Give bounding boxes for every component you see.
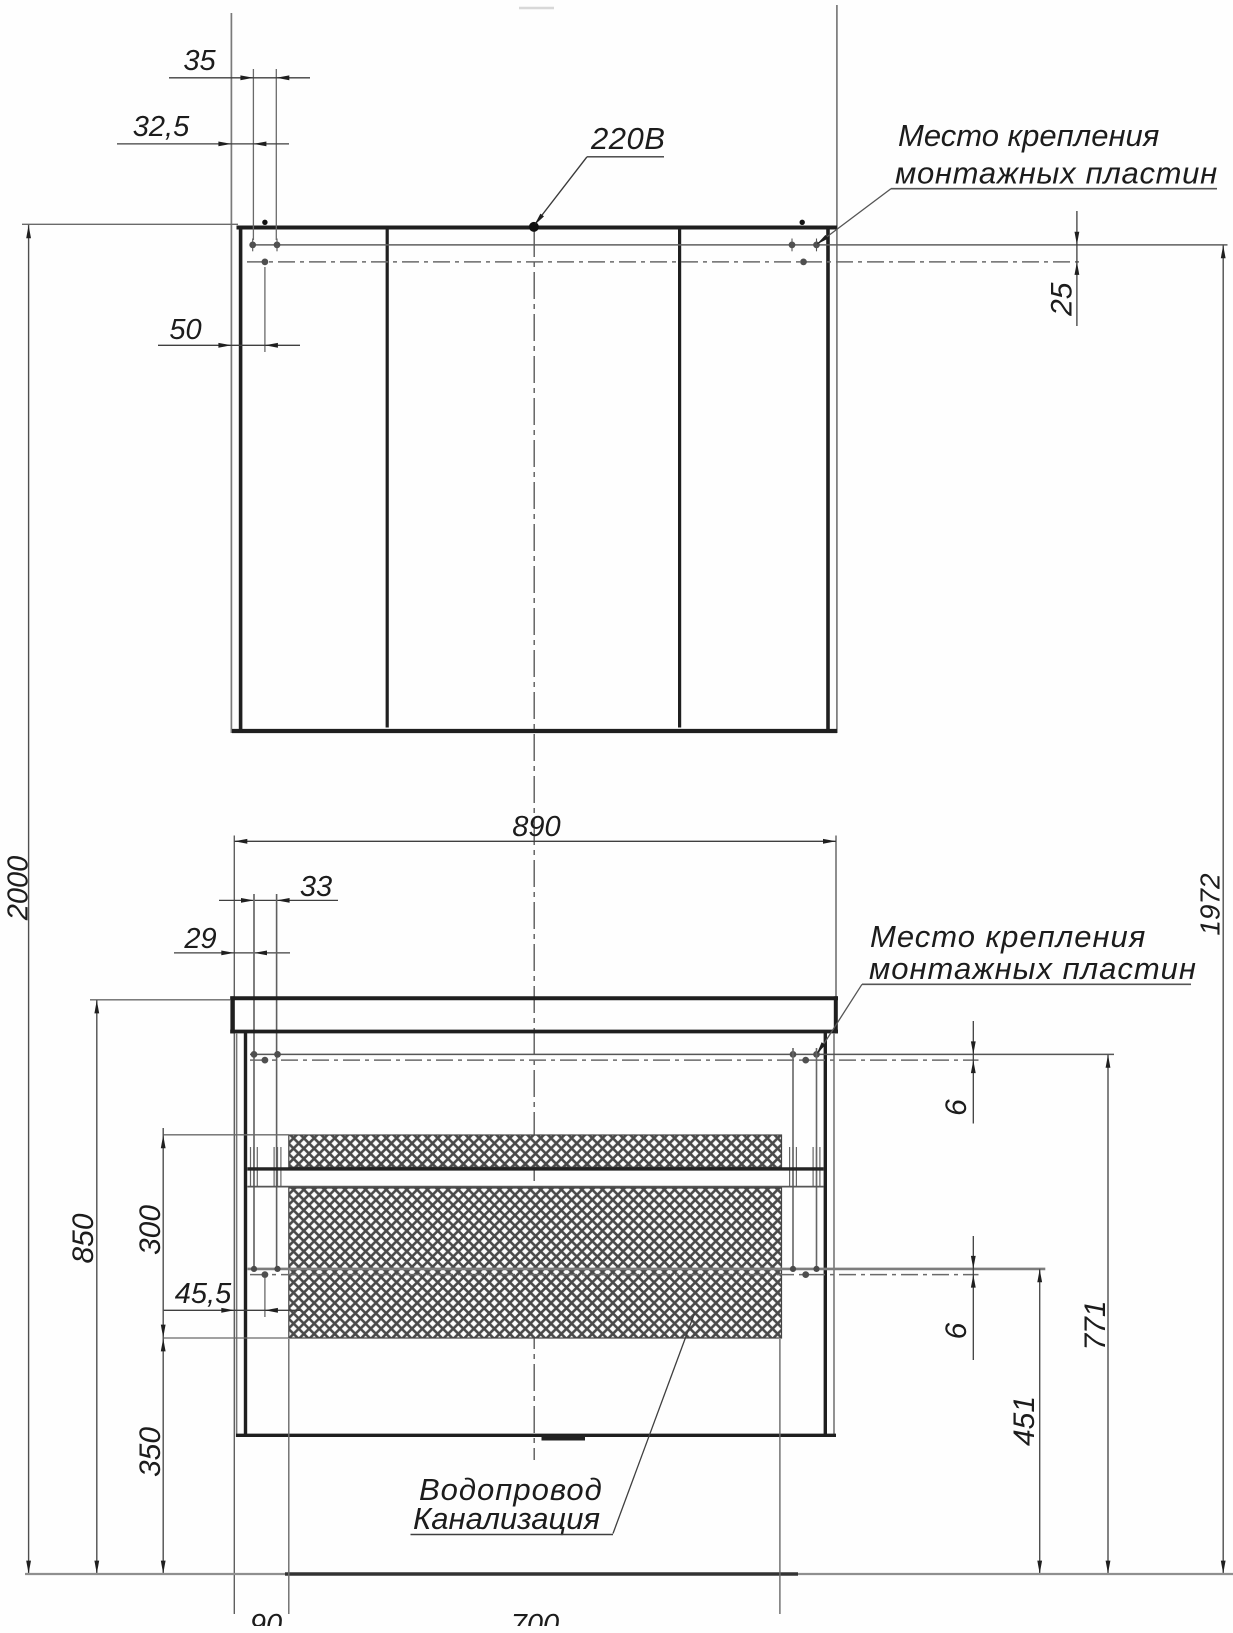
- svg-text:29: 29: [183, 923, 216, 955]
- svg-text:Место крепления: Место крепления: [870, 919, 1146, 954]
- svg-text:451: 451: [1008, 1396, 1041, 1446]
- svg-text:850: 850: [67, 1213, 100, 1263]
- svg-text:Канализация: Канализация: [413, 1501, 600, 1536]
- svg-text:2000: 2000: [3, 856, 35, 922]
- svg-text:33: 33: [300, 871, 332, 903]
- svg-text:890: 890: [512, 811, 560, 843]
- svg-text:монтажных пластин: монтажных пластин: [869, 951, 1197, 986]
- svg-text:50: 50: [169, 314, 201, 346]
- svg-text:монтажных пластин: монтажных пластин: [895, 156, 1218, 191]
- svg-text:1972: 1972: [1195, 873, 1226, 936]
- svg-text:Место крепления: Место крепления: [898, 118, 1159, 153]
- svg-text:35: 35: [183, 45, 216, 77]
- svg-text:45,5: 45,5: [175, 1278, 232, 1310]
- svg-text:350: 350: [134, 1427, 167, 1477]
- svg-text:25: 25: [1046, 282, 1079, 317]
- svg-text:6: 6: [940, 1322, 973, 1339]
- svg-text:32,5: 32,5: [133, 111, 190, 143]
- svg-text:6: 6: [940, 1099, 973, 1116]
- svg-text:771: 771: [1079, 1300, 1112, 1350]
- svg-text:220В: 220В: [590, 121, 665, 156]
- svg-text:300: 300: [134, 1205, 167, 1255]
